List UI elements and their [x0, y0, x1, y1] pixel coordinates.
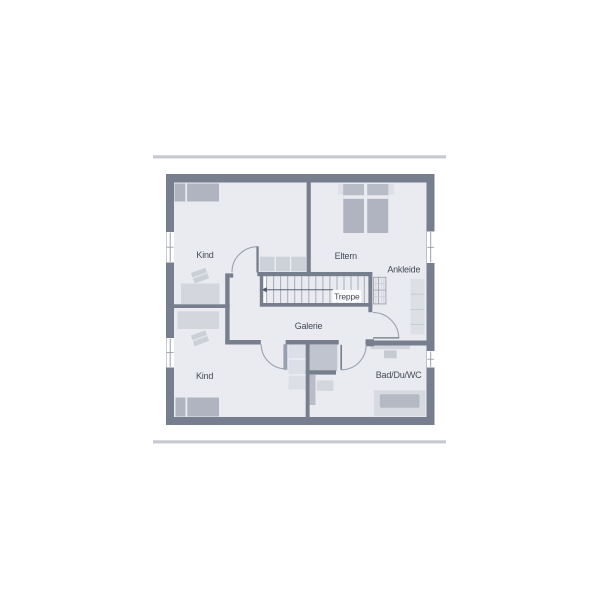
svg-text:Bad/Du/WC: Bad/Du/WC — [376, 370, 422, 380]
svg-text:Galerie: Galerie — [295, 321, 323, 331]
svg-text:Ankleide: Ankleide — [387, 264, 420, 274]
svg-text:Treppe: Treppe — [334, 291, 360, 301]
svg-text:Eltern: Eltern — [335, 251, 358, 261]
svg-text:Kind: Kind — [196, 250, 213, 260]
svg-text:Kind: Kind — [196, 371, 213, 381]
